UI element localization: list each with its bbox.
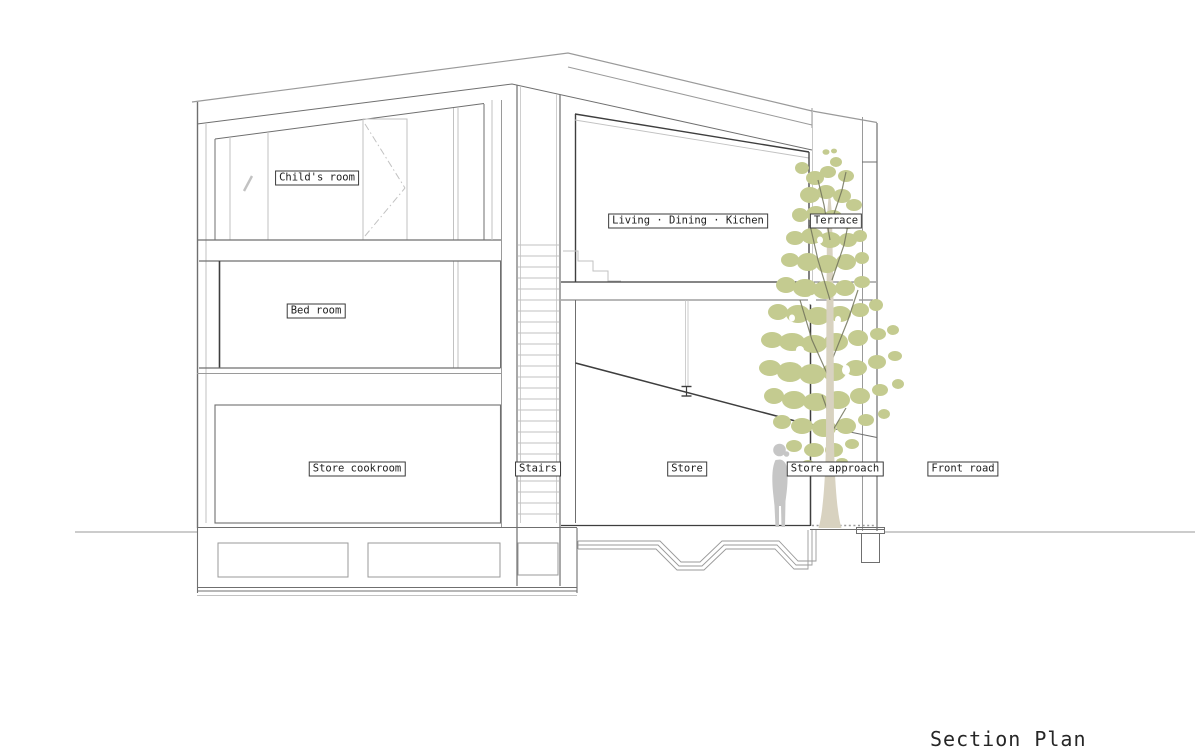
label-childs-room: Child's room <box>275 171 359 186</box>
label-bed-room: Bed room <box>287 304 346 319</box>
door-swing-symbol <box>365 124 405 236</box>
roof-lines <box>192 53 877 150</box>
hanger-rod <box>682 300 692 396</box>
architectural-section-drawing <box>0 0 1200 756</box>
label-stairs: Stairs <box>515 462 561 477</box>
label-living-dining-kitchen: Living · Dining · Kichen <box>608 214 768 229</box>
label-store-cookroom: Store cookroom <box>309 462 406 477</box>
label-front-road: Front road <box>927 462 998 477</box>
street-footing <box>857 528 885 563</box>
label-terrace: Terrace <box>810 214 862 229</box>
section-plan-canvas: Child's room Bed room Store cookroom Sta… <box>0 0 1200 756</box>
label-store: Store <box>667 462 707 477</box>
stepped-footing <box>578 530 816 570</box>
person-silhouette <box>772 444 789 527</box>
foundation <box>197 528 885 596</box>
drawing-title: Section Plan <box>930 727 1087 751</box>
label-store-approach: Store approach <box>787 462 884 477</box>
stair-shaft <box>517 85 560 586</box>
